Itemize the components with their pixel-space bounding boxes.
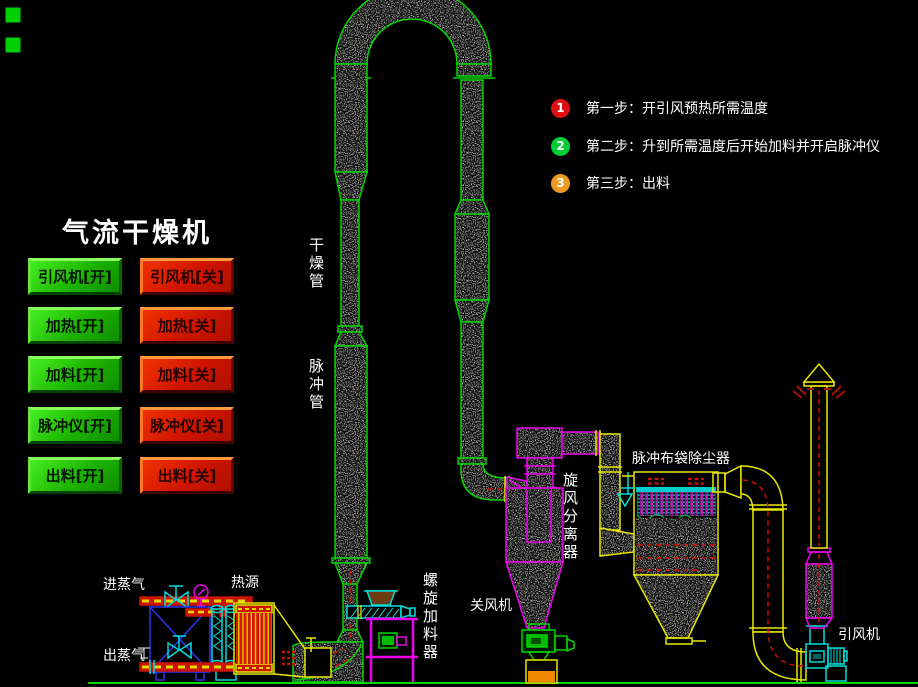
label-drying-tube: 干燥管: [306, 237, 327, 291]
feed-on-button[interactable]: 加料[开]: [28, 356, 122, 393]
label-cyclone: 旋风分离器: [560, 472, 581, 562]
step-1-badge: 1: [551, 99, 570, 118]
step-1-text: 第一步：开引风预热所需温度: [586, 98, 768, 118]
label-air-valve: 关风机: [470, 595, 512, 615]
label-steam-in: 进蒸气: [103, 574, 145, 594]
filter-bags: [637, 492, 716, 516]
label-steam-out: 出蒸气: [103, 645, 145, 665]
scada-screen: { "title": "气流干燥机", "indicators": {"colo…: [0, 0, 918, 687]
step-3: 3 第三步：出料: [551, 173, 670, 193]
discharge-off-button[interactable]: 出料[关]: [140, 457, 234, 494]
label-pulse-tube: 脉冲管: [306, 358, 327, 412]
fan-on-button[interactable]: 引风机[开]: [28, 258, 122, 295]
step-2-badge: 2: [551, 137, 570, 156]
label-dust-collector: 脉冲布袋除尘器: [632, 448, 730, 468]
step-2-text: 第二步：升到所需温度后开始加料并开启脉冲仪: [586, 136, 880, 156]
label-heat-source: 热源: [231, 572, 259, 592]
step-3-badge: 3: [551, 174, 570, 193]
step-1: 1 第一步：开引风预热所需温度: [551, 98, 768, 118]
feed-off-button[interactable]: 加料[关]: [140, 356, 234, 393]
step-2: 2 第二步：升到所需温度后开始加料并开启脉冲仪: [551, 136, 880, 156]
fan-off-button[interactable]: 引风机[关]: [140, 258, 234, 295]
feeder-stand: [366, 618, 418, 682]
label-draft-fan: 引风机: [838, 624, 880, 644]
heat-on-button[interactable]: 加热[开]: [28, 307, 122, 344]
pulse-off-button[interactable]: 脉冲仪[关]: [140, 407, 234, 444]
radiator: [234, 603, 331, 677]
exhaust-stack: [793, 364, 845, 628]
discharge-on-button[interactable]: 出料[开]: [28, 457, 122, 494]
cyclone-separator: [505, 428, 598, 628]
pulse-on-button[interactable]: 脉冲仪[开]: [28, 407, 122, 444]
heat-off-button[interactable]: 加热[关]: [140, 307, 234, 344]
step-3-text: 第三步：出料: [586, 173, 670, 193]
exhaust-duct: [741, 466, 806, 682]
drying-pipe: [331, 0, 507, 642]
rotary-valve: [522, 624, 574, 683]
page-title: 气流干燥机: [62, 211, 212, 250]
label-screw-feeder: 螺旋加料器: [420, 572, 441, 662]
